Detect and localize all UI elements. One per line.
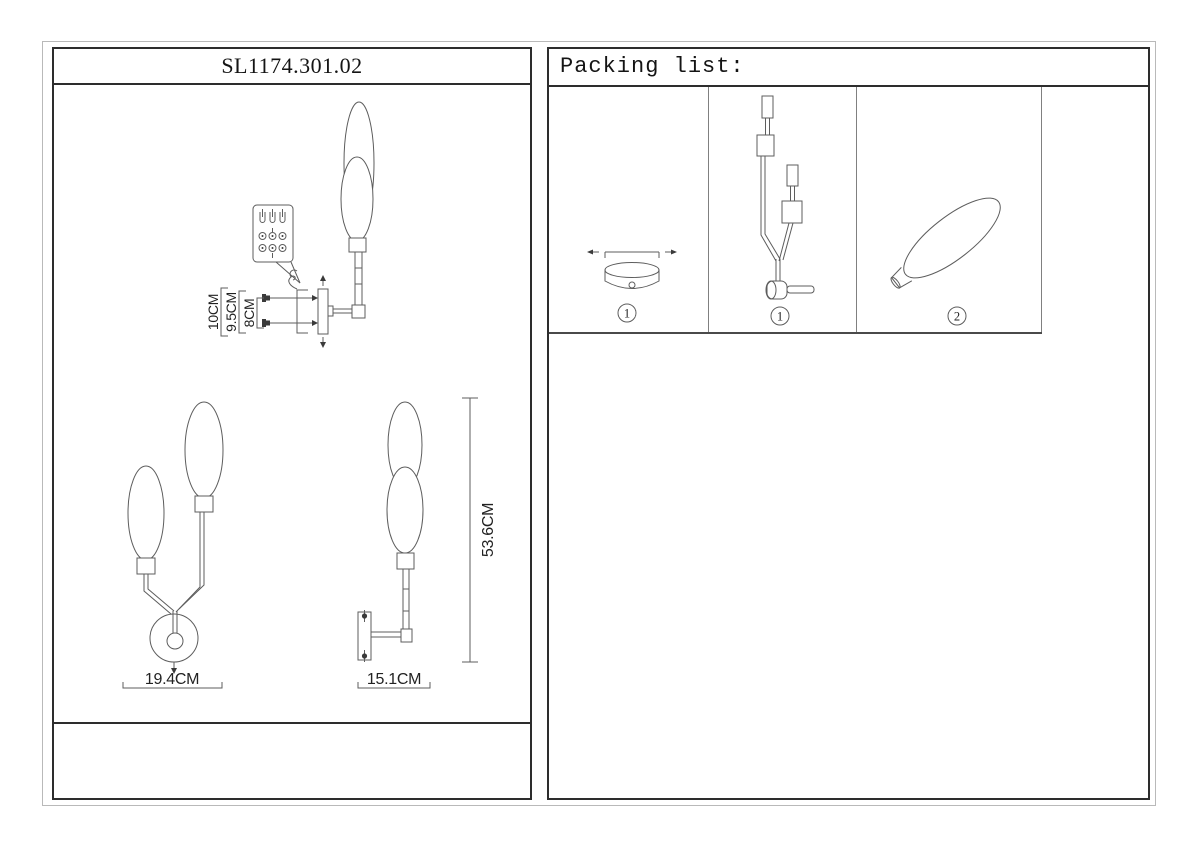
drawing-panel: SL1174.301.02 [52,47,532,800]
instruction-sheet: SL1174.301.02 Packing list: [0,0,1200,848]
packing-cell-frame [709,87,857,332]
packing-list-header: Packing list: [549,49,1148,87]
packing-list-title: Packing list: [560,54,745,79]
packing-panel: Packing list: [547,47,1150,800]
packing-cell-shade [857,87,1042,332]
model-number: SL1174.301.02 [221,53,362,78]
model-number-bar: SL1174.301.02 [54,49,530,85]
footer-divider [54,722,530,724]
packing-cell-canopy [549,87,709,332]
packing-table-row [549,87,1042,334]
